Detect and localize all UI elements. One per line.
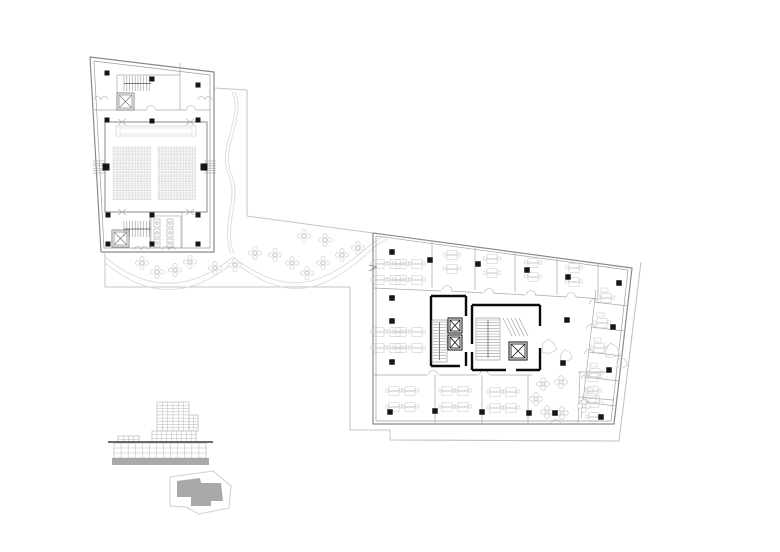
floor-plan-drawing [0,0,780,552]
drawing-sheet [0,0,780,552]
key-plan [170,471,231,514]
auditorium-building [90,57,216,252]
office-building [369,233,641,441]
building-elevation [108,402,213,465]
